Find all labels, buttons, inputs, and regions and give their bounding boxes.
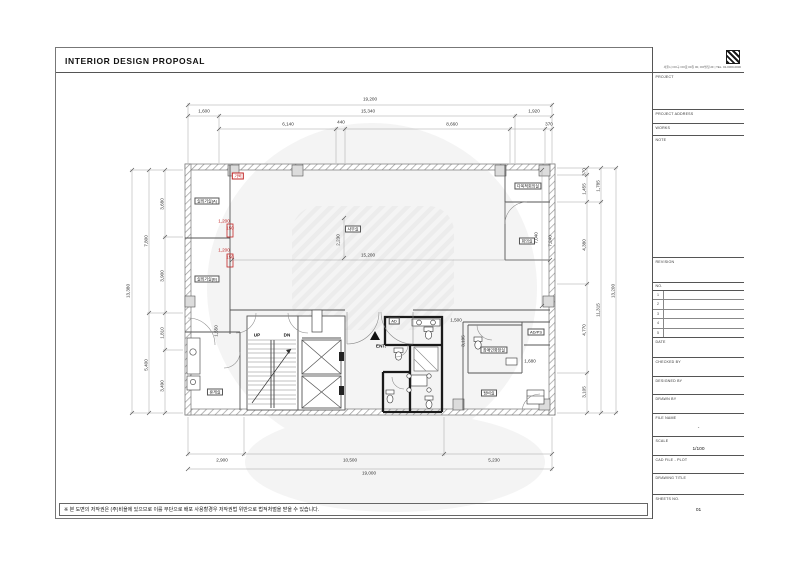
drawing-sheet: INTERIOR DESIGN PROPOSAL (0, 0, 800, 565)
title-block: 서울시 OO구 OO로 00길 00, OO빌딩 2F | TEL. 02-00… (652, 47, 744, 519)
titleblock-drawn-by: DRAWN BY (653, 395, 744, 414)
titleblock-cad-file: CAD FILE - PLOT (653, 456, 744, 474)
logo-section: 서울시 OO구 OO로 00길 00, OO빌딩 2F | TEL. 02-00… (653, 47, 744, 73)
titleblock-note: NOTE (653, 136, 744, 258)
titleblock-designed-by: DESIGNED BY (653, 377, 744, 395)
titleblock-checked-by: CHECKED BY (653, 358, 744, 377)
revision-row: 2 (653, 300, 744, 309)
titleblock-sheets-no: SHEETS NO. 01 (653, 495, 744, 519)
titleblock-project-address: PROJECT ADDRESS (653, 110, 744, 124)
scale-value: 1/100 (653, 447, 744, 452)
file-name-value: - (653, 426, 744, 431)
titleblock-date: DATE (653, 338, 744, 358)
titleblock-drawing-title: DRAWING TITLE (653, 474, 744, 495)
titleblock-revision-table: NO. 1 2 3 4 5 (653, 283, 744, 338)
stair-core (247, 316, 298, 410)
revision-row: 4 (653, 319, 744, 328)
elevator-core (298, 310, 345, 410)
titleblock-file-name: FILE NAME - (653, 414, 744, 437)
titleblock-revision: REVISION (653, 258, 744, 283)
revision-row: 3 (653, 310, 744, 319)
lounge-counter (187, 338, 200, 390)
titleblock-project: PROJECT (653, 73, 744, 110)
titleblock-works: WORKS (653, 124, 744, 136)
revision-row: 1 (653, 291, 744, 300)
copyright-note: ※ 본 도면의 저작권은 (주)비욜에 있으므로 이를 무단으로 배포 사용할경… (59, 503, 648, 516)
sheet-number: 01 (653, 508, 744, 513)
company-logo (726, 50, 740, 64)
titleblock-scale: SCALE 1/100 (653, 437, 744, 456)
company-address: 서울시 OO구 OO로 00길 00, OO빌딩 2F | TEL. 02-00… (664, 65, 741, 69)
revision-row: 5 (653, 329, 744, 338)
